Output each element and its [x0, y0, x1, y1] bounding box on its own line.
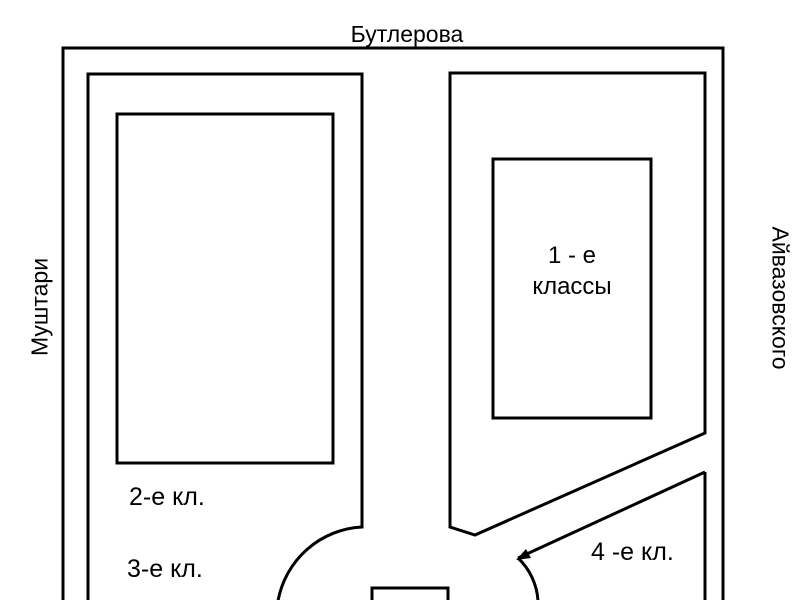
first-classes-label-line1: 1 - е [548, 242, 596, 269]
second-classes-label: 2-е кл. [129, 483, 205, 512]
outer-boundary-fence [63, 48, 723, 600]
porch-rectangle [372, 588, 448, 600]
schoolyard-plan: Бутлерова Муштари Айвазовского 1 - е кла… [0, 0, 800, 600]
left-yard-outline [88, 74, 362, 600]
street-name-butlerova: Бутлерова [327, 21, 487, 48]
left-yard-inner-rectangle [117, 114, 333, 463]
right-entrance-arc [518, 558, 538, 600]
plan-drawing [0, 0, 800, 600]
fourth-classes-label: 4 -е кл. [591, 538, 674, 567]
first-classes-label-line2: классы [532, 273, 611, 300]
street-name-mushtari: Муштари [27, 258, 54, 356]
first-classes-label: 1 - е классы [493, 240, 651, 302]
right-yard-outline [450, 73, 705, 535]
third-classes-label: 3-е кл. [127, 555, 203, 584]
street-name-aivazovskogo: Айвазовского [767, 226, 794, 369]
